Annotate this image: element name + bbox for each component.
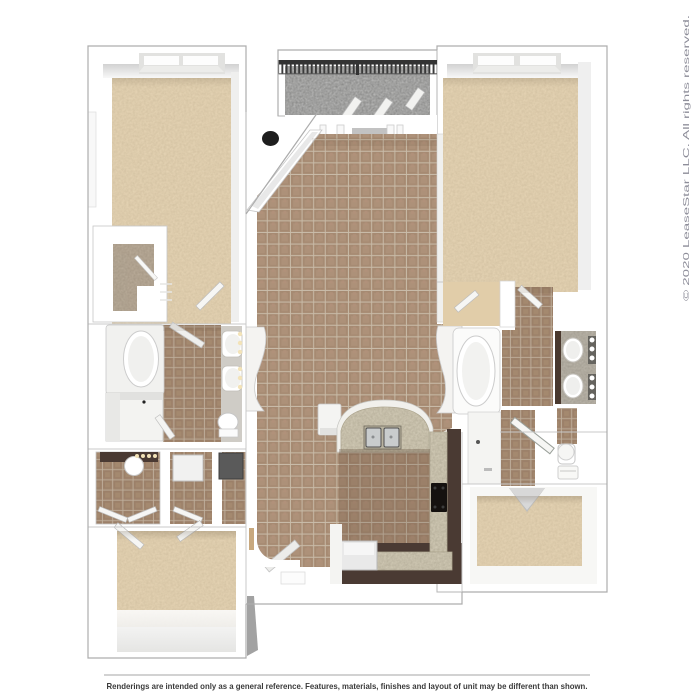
svg-text:Renderings are intended only a: Renderings are intended only as a genera… <box>107 682 588 691</box>
svg-text:© 2020 LeaseStar LLC. All righ: © 2020 LeaseStar LLC. All rights reserve… <box>681 15 691 301</box>
